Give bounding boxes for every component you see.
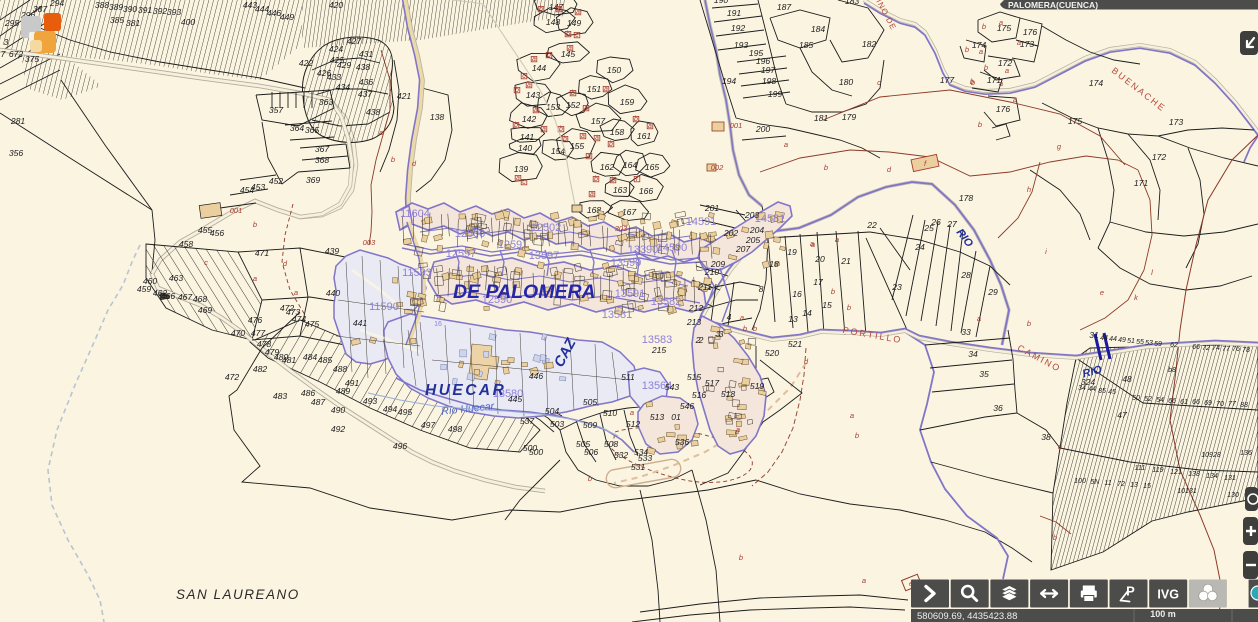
svg-text:13: 13 — [788, 314, 798, 324]
svg-text:672: 672 — [9, 49, 24, 59]
svg-text:151: 151 — [587, 84, 602, 94]
svg-text:518: 518 — [721, 389, 736, 399]
svg-text:199: 199 — [768, 89, 783, 99]
svg-text:69: 69 — [1204, 400, 1212, 407]
svg-text:142: 142 — [522, 114, 537, 124]
svg-text:211: 211 — [697, 282, 712, 292]
svg-text:543: 543 — [665, 382, 680, 392]
svg-text:441: 441 — [353, 318, 368, 328]
svg-text:88: 88 — [1240, 402, 1248, 409]
svg-text:13: 13 — [1130, 482, 1138, 489]
svg-text:531: 531 — [631, 462, 646, 472]
svg-text:391: 391 — [138, 5, 153, 15]
svg-text:111: 111 — [1135, 465, 1146, 472]
svg-text:13590: 13590 — [611, 257, 642, 269]
svg-text:10928: 10928 — [1201, 452, 1221, 459]
svg-text:b: b — [824, 163, 828, 172]
svg-text:12597: 12597 — [446, 248, 477, 260]
svg-text:85: 85 — [1098, 388, 1106, 395]
svg-text:454: 454 — [240, 185, 255, 195]
svg-text:422: 422 — [299, 58, 314, 68]
svg-text:77: 77 — [1222, 346, 1231, 353]
svg-text:420: 420 — [329, 0, 344, 10]
svg-text:74: 74 — [1212, 345, 1220, 352]
svg-text:72: 72 — [1202, 345, 1210, 352]
svg-text:500: 500 — [529, 447, 544, 457]
svg-text:203: 203 — [744, 210, 760, 220]
svg-text:364: 364 — [290, 123, 305, 133]
svg-text:172: 172 — [1152, 152, 1167, 162]
svg-text:508: 508 — [604, 439, 619, 449]
svg-text:163: 163 — [613, 185, 628, 195]
svg-text:537: 537 — [520, 416, 536, 426]
svg-text:a: a — [740, 313, 744, 322]
svg-text:498: 498 — [448, 424, 463, 434]
svg-text:192: 192 — [731, 23, 746, 33]
svg-text:161: 161 — [637, 131, 652, 141]
svg-text:15: 15 — [822, 300, 832, 310]
svg-text:59: 59 — [1154, 341, 1162, 348]
svg-text:a: a — [576, 9, 580, 16]
svg-text:174: 174 — [1089, 78, 1104, 88]
svg-text:b: b — [1027, 319, 1031, 328]
svg-text:136: 136 — [1240, 450, 1252, 457]
svg-text:139: 139 — [514, 164, 529, 174]
svg-text:27: 27 — [946, 219, 958, 229]
svg-text:506: 506 — [584, 447, 599, 457]
svg-text:36: 36 — [993, 403, 1003, 413]
svg-text:77: 77 — [1228, 401, 1237, 408]
svg-text:512: 512 — [626, 419, 641, 429]
svg-text:a: a — [534, 107, 538, 114]
svg-text:a: a — [835, 235, 839, 244]
svg-text:511: 511 — [621, 372, 635, 382]
svg-text:532: 532 — [614, 450, 629, 460]
svg-text:66: 66 — [1192, 344, 1200, 351]
svg-text:b: b — [609, 141, 613, 148]
svg-text:13581: 13581 — [602, 309, 633, 321]
svg-text:207: 207 — [735, 244, 752, 254]
svg-text:24: 24 — [914, 242, 925, 252]
svg-text:15: 15 — [1143, 483, 1151, 490]
svg-text:388: 388 — [95, 0, 110, 10]
svg-text:166: 166 — [639, 186, 654, 196]
svg-text:b: b — [563, 136, 567, 143]
svg-text:b: b — [855, 431, 859, 440]
svg-text:a: a — [595, 135, 599, 142]
svg-text:470: 470 — [231, 328, 246, 338]
svg-text:b: b — [571, 90, 575, 97]
svg-text:23: 23 — [891, 282, 902, 292]
svg-text:001: 001 — [730, 121, 743, 130]
svg-text:390: 390 — [123, 4, 138, 14]
svg-text:31: 31 — [1089, 330, 1099, 340]
svg-text:b: b — [971, 78, 975, 87]
svg-text:51: 51 — [1127, 338, 1135, 345]
svg-text:b: b — [391, 155, 395, 164]
svg-text:45: 45 — [1108, 389, 1116, 396]
svg-text:392: 392 — [153, 6, 168, 16]
svg-text:176: 176 — [996, 104, 1011, 114]
svg-text:48: 48 — [1122, 374, 1132, 384]
svg-text:215: 215 — [651, 345, 667, 355]
svg-text:22: 22 — [866, 220, 877, 230]
svg-text:b: b — [965, 45, 969, 54]
svg-text:b: b — [611, 177, 615, 184]
svg-text:497: 497 — [421, 420, 437, 430]
svg-text:515: 515 — [687, 372, 702, 382]
svg-text:520: 520 — [765, 348, 780, 358]
svg-text:76: 76 — [1232, 346, 1240, 353]
svg-text:14590: 14590 — [657, 242, 688, 254]
svg-text:c: c — [522, 179, 526, 186]
svg-text:130: 130 — [1227, 492, 1239, 499]
svg-text:b: b — [594, 176, 598, 183]
svg-text:20: 20 — [814, 254, 825, 264]
svg-text:150: 150 — [607, 65, 622, 75]
svg-text:212: 212 — [688, 303, 704, 313]
svg-text:12500: 12500 — [455, 228, 486, 240]
svg-text:505: 505 — [583, 397, 598, 407]
svg-text:513: 513 — [650, 412, 665, 422]
svg-text:16: 16 — [434, 321, 442, 328]
svg-text:5N: 5N — [1091, 479, 1101, 486]
svg-text:194: 194 — [722, 76, 737, 86]
svg-text:365: 365 — [305, 125, 320, 135]
svg-text:510: 510 — [603, 408, 618, 418]
svg-text:61: 61 — [1180, 399, 1188, 406]
svg-text:a: a — [979, 47, 983, 56]
svg-text:121: 121 — [1170, 469, 1182, 476]
svg-text:144: 144 — [532, 63, 547, 73]
svg-text:487: 487 — [311, 397, 327, 407]
svg-text:b: b — [588, 474, 592, 483]
svg-text:171: 171 — [1134, 178, 1149, 188]
svg-text:14581: 14581 — [755, 213, 786, 225]
svg-text:b: b — [634, 116, 638, 123]
svg-text:375: 375 — [25, 54, 40, 64]
svg-text:181: 181 — [814, 113, 829, 123]
svg-text:433: 433 — [327, 72, 342, 82]
svg-text:a: a — [581, 133, 585, 140]
svg-text:47: 47 — [1117, 410, 1128, 420]
svg-text:187: 187 — [777, 2, 793, 12]
svg-text:HUECAR: HUECAR — [425, 382, 506, 399]
svg-text:141: 141 — [520, 132, 535, 142]
svg-text:424: 424 — [329, 44, 344, 54]
svg-text:484: 484 — [303, 352, 318, 362]
svg-text:003: 003 — [363, 238, 376, 247]
svg-text:a: a — [1058, 442, 1062, 451]
svg-text:509: 509 — [583, 420, 598, 430]
svg-text:54: 54 — [1156, 397, 1164, 404]
svg-text:488: 488 — [333, 364, 348, 374]
svg-text:26: 26 — [930, 217, 941, 227]
svg-text:185: 185 — [799, 40, 814, 50]
svg-text:437: 437 — [358, 89, 374, 99]
svg-text:62: 62 — [1170, 342, 1178, 349]
svg-text:521: 521 — [788, 339, 803, 349]
svg-text:13582: 13582 — [651, 296, 682, 308]
svg-text:182: 182 — [862, 39, 877, 49]
svg-text:177: 177 — [940, 75, 956, 85]
svg-text:495: 495 — [398, 407, 413, 417]
svg-text:a: a — [977, 314, 981, 323]
svg-text:467: 467 — [178, 292, 194, 302]
svg-text:449: 449 — [280, 12, 295, 22]
svg-text:438: 438 — [356, 62, 371, 72]
svg-text:PALOMERA(CUENCA): PALOMERA(CUENCA) — [1008, 0, 1098, 10]
svg-text:440: 440 — [326, 288, 341, 298]
svg-text:140: 140 — [518, 143, 533, 153]
svg-text:29: 29 — [987, 287, 998, 297]
svg-text:429: 429 — [337, 60, 352, 70]
svg-text:431: 431 — [359, 49, 374, 59]
svg-text:b: b — [739, 553, 743, 562]
svg-text:200: 200 — [755, 124, 771, 134]
svg-text:70: 70 — [1216, 401, 1224, 408]
svg-text:002: 002 — [711, 163, 724, 172]
svg-text:b: b — [753, 324, 757, 333]
svg-text:458: 458 — [179, 239, 194, 249]
svg-text:193: 193 — [734, 40, 749, 50]
svg-text:158: 158 — [610, 127, 625, 137]
svg-text:368: 368 — [315, 155, 330, 165]
svg-text:546: 546 — [680, 401, 695, 411]
svg-text:485: 485 — [318, 355, 333, 365]
svg-text:b: b — [253, 220, 257, 229]
svg-text:b: b — [515, 87, 519, 94]
svg-text:a: a — [1013, 95, 1017, 104]
svg-text:162: 162 — [600, 162, 615, 172]
svg-text:10131: 10131 — [1177, 488, 1197, 495]
svg-text:16: 16 — [792, 289, 802, 299]
svg-text:159: 159 — [620, 97, 635, 107]
svg-text:a: a — [604, 86, 608, 93]
svg-text:c: c — [522, 73, 526, 80]
svg-text:184: 184 — [811, 24, 826, 34]
svg-text:a: a — [516, 175, 520, 182]
svg-text:11593: 11593 — [402, 267, 432, 279]
svg-text:472: 472 — [225, 372, 240, 382]
svg-text:173: 173 — [1020, 39, 1035, 49]
svg-text:165: 165 — [645, 162, 660, 172]
svg-text:210: 210 — [704, 267, 720, 277]
svg-text:b: b — [514, 122, 518, 129]
svg-text:489: 489 — [336, 386, 351, 396]
svg-text:8: 8 — [759, 284, 764, 294]
svg-text:476: 476 — [248, 315, 263, 325]
svg-text:e: e — [1100, 288, 1104, 297]
svg-text:466: 466 — [161, 291, 176, 301]
svg-text:a: a — [527, 82, 531, 89]
svg-text:100: 100 — [1074, 478, 1086, 485]
svg-text:471: 471 — [255, 248, 270, 258]
svg-text:44: 44 — [1088, 386, 1096, 393]
svg-text:494: 494 — [383, 404, 398, 414]
svg-text:001: 001 — [230, 206, 243, 215]
svg-text:477: 477 — [251, 328, 267, 338]
svg-text:4: 4 — [727, 312, 732, 322]
svg-text:446: 446 — [529, 371, 544, 381]
svg-text:385: 385 — [110, 15, 125, 25]
svg-text:452: 452 — [269, 176, 284, 186]
svg-text:197: 197 — [761, 65, 777, 75]
svg-text:154: 154 — [551, 146, 566, 156]
svg-text:393: 393 — [167, 7, 182, 17]
svg-text:b: b — [547, 52, 551, 59]
svg-text:IVG: IVG — [1157, 588, 1179, 602]
svg-text:119: 119 — [1152, 467, 1163, 474]
svg-text:131: 131 — [1224, 475, 1236, 482]
svg-text:b: b — [559, 126, 563, 133]
svg-text:369: 369 — [306, 175, 321, 185]
svg-text:19: 19 — [787, 247, 797, 257]
svg-text:38: 38 — [1041, 432, 1051, 442]
svg-text:h: h — [1027, 185, 1031, 194]
svg-text:11590: 11590 — [369, 301, 399, 313]
svg-text:381: 381 — [126, 18, 141, 28]
svg-text:481: 481 — [282, 355, 297, 365]
svg-text:a: a — [810, 239, 814, 248]
svg-text:503: 503 — [550, 419, 565, 429]
svg-text:55: 55 — [1136, 339, 1144, 346]
svg-text:12591: 12591 — [498, 239, 529, 251]
svg-text:a: a — [587, 153, 591, 160]
svg-text:34: 34 — [1078, 385, 1086, 392]
svg-text:49: 49 — [1118, 337, 1126, 344]
svg-text:400: 400 — [181, 17, 196, 27]
svg-text:580609.69, 4435423.88: 580609.69, 4435423.88 — [917, 611, 1017, 622]
svg-text:2: 2 — [695, 335, 701, 345]
svg-text:72: 72 — [1117, 481, 1125, 488]
svg-text:295: 295 — [4, 18, 20, 28]
svg-text:21: 21 — [840, 256, 851, 266]
svg-text:482: 482 — [253, 364, 268, 374]
svg-text:a: a — [584, 105, 588, 112]
svg-text:44: 44 — [1109, 336, 1117, 343]
svg-text:18: 18 — [769, 259, 779, 269]
svg-text:175: 175 — [1068, 116, 1083, 126]
svg-text:213: 213 — [686, 317, 702, 327]
svg-text:202: 202 — [723, 228, 739, 238]
svg-text:11: 11 — [1104, 480, 1111, 487]
svg-text:517: 517 — [705, 378, 721, 388]
svg-text:a: a — [648, 123, 652, 130]
svg-text:b: b — [984, 63, 988, 72]
svg-text:b: b — [831, 287, 835, 296]
svg-text:367: 367 — [315, 144, 331, 154]
svg-text:303: 303 — [615, 224, 628, 233]
svg-text:a: a — [999, 18, 1003, 27]
svg-text:b: b — [978, 120, 982, 129]
svg-text:356: 356 — [9, 148, 24, 158]
svg-text:a: a — [1017, 38, 1021, 47]
svg-text:a: a — [379, 128, 383, 137]
svg-text:421: 421 — [397, 91, 412, 101]
svg-text:490: 490 — [331, 405, 346, 415]
svg-text:13597: 13597 — [529, 250, 560, 262]
svg-text:201: 201 — [704, 203, 720, 213]
svg-text:191: 191 — [727, 8, 742, 18]
svg-text:190: 190 — [714, 0, 729, 5]
svg-text:475: 475 — [305, 319, 320, 329]
svg-text:434: 434 — [336, 82, 351, 92]
svg-text:b: b — [982, 22, 986, 31]
svg-text:519: 519 — [750, 381, 765, 391]
svg-text:01: 01 — [671, 412, 681, 422]
svg-text:53: 53 — [1145, 340, 1153, 347]
svg-text:363: 363 — [319, 97, 334, 107]
svg-text:164: 164 — [623, 160, 638, 170]
svg-text:469: 469 — [198, 305, 213, 315]
svg-text:180: 180 — [839, 77, 854, 87]
svg-text:a: a — [532, 56, 536, 63]
svg-text:436: 436 — [359, 77, 374, 87]
svg-text:445: 445 — [508, 394, 523, 404]
svg-text:14: 14 — [802, 308, 812, 318]
svg-text:a: a — [568, 45, 572, 52]
svg-text:a: a — [590, 191, 594, 198]
svg-text:a: a — [735, 427, 739, 436]
svg-text:157: 157 — [591, 116, 607, 126]
svg-text:52: 52 — [1144, 396, 1152, 403]
svg-text:a: a — [862, 576, 866, 585]
svg-text:492: 492 — [331, 424, 346, 434]
svg-text:a: a — [294, 288, 298, 297]
svg-text:b: b — [743, 324, 747, 333]
svg-text:3: 3 — [716, 329, 721, 339]
svg-text:a: a — [784, 140, 788, 149]
svg-text:DE PALOMERA: DE PALOMERA — [453, 281, 596, 303]
svg-text:35: 35 — [979, 369, 989, 379]
svg-text:44: 44 — [1100, 335, 1108, 342]
svg-text:b: b — [847, 303, 851, 312]
svg-text:100 m: 100 m — [1150, 609, 1176, 619]
svg-text:78: 78 — [1242, 347, 1250, 354]
svg-text:496: 496 — [393, 441, 408, 451]
svg-text:a: a — [999, 79, 1003, 88]
svg-text:b8: b8 — [1168, 367, 1176, 374]
svg-text:c: c — [877, 78, 881, 87]
svg-text:12502: 12502 — [531, 222, 562, 234]
svg-text:c: c — [575, 32, 579, 39]
svg-text:a: a — [630, 408, 634, 417]
svg-text:138: 138 — [1188, 471, 1200, 478]
svg-text:178: 178 — [959, 193, 974, 203]
svg-text:439: 439 — [325, 246, 340, 256]
svg-text:294: 294 — [49, 0, 65, 8]
svg-text:66: 66 — [1192, 399, 1200, 406]
svg-text:536: 536 — [675, 437, 690, 447]
svg-text:183: 183 — [845, 0, 860, 6]
svg-text:468: 468 — [193, 294, 208, 304]
svg-text:357: 357 — [269, 105, 285, 115]
svg-text:204: 204 — [749, 225, 765, 235]
svg-text:459: 459 — [137, 284, 152, 294]
svg-text:33: 33 — [961, 327, 971, 337]
svg-text:SAN LAUREANO: SAN LAUREANO — [176, 587, 300, 602]
svg-text:176: 176 — [1023, 27, 1038, 37]
svg-text:389: 389 — [109, 2, 124, 12]
svg-text:b: b — [1053, 533, 1057, 542]
svg-text:134: 134 — [1206, 473, 1218, 480]
svg-text:c: c — [204, 258, 208, 267]
svg-text:34: 34 — [968, 349, 978, 359]
svg-text:a: a — [542, 126, 546, 133]
svg-text:a: a — [1005, 66, 1009, 75]
svg-text:493: 493 — [363, 396, 378, 406]
